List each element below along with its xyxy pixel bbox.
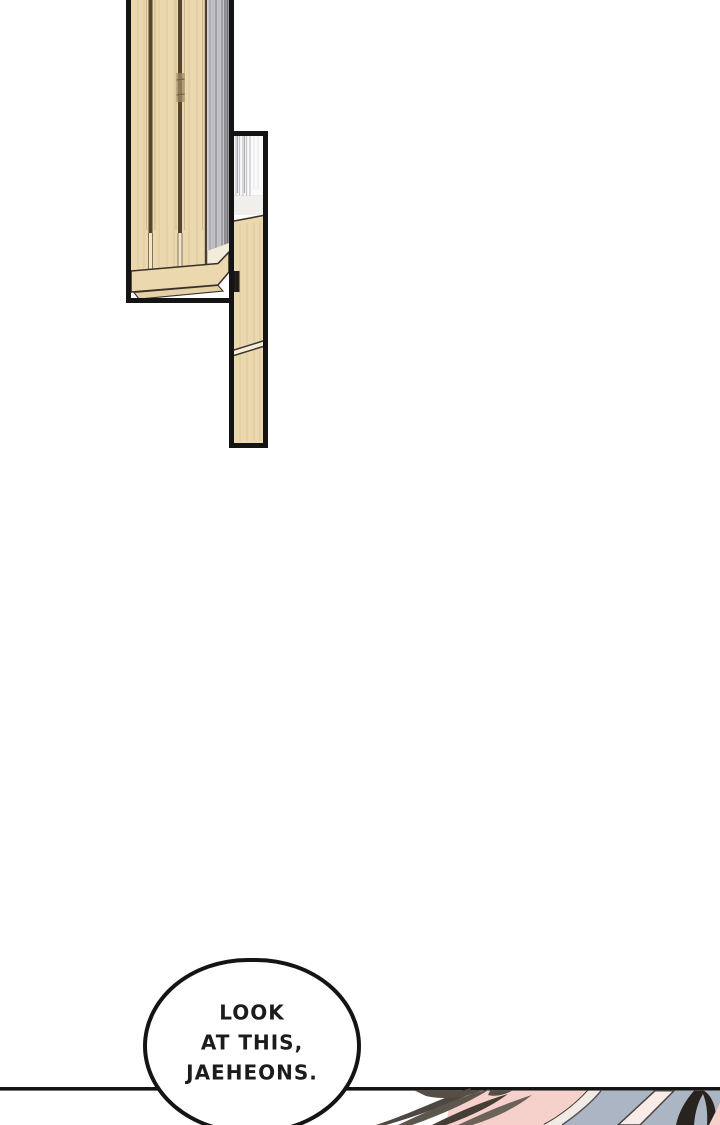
wood-slat bbox=[131, 0, 149, 272]
bottom-scene-artwork bbox=[0, 1085, 720, 1125]
sill-band bbox=[234, 196, 263, 215]
wood-slats bbox=[131, 0, 206, 272]
slat-gap bbox=[178, 0, 182, 233]
main-panel bbox=[126, 0, 234, 303]
character-head bbox=[376, 1088, 720, 1125]
beam-end-shadow bbox=[234, 271, 240, 292]
furniture-panels-artwork bbox=[0, 0, 720, 460]
inset-panel bbox=[229, 131, 268, 448]
wood-slat bbox=[182, 0, 205, 272]
shared-panel-border bbox=[229, 0, 234, 448]
comic-page: LOOK AT THIS, JAEHEONS. bbox=[0, 0, 720, 1125]
wood-joint bbox=[177, 73, 185, 102]
scene-divider-line bbox=[0, 1087, 720, 1091]
speech-bubble: LOOK AT THIS, JAEHEONS. bbox=[143, 958, 361, 1125]
bubble-line-1: LOOK bbox=[147, 997, 357, 1027]
bubble-line-2: AT THIS, bbox=[147, 1027, 357, 1057]
gray-curtain bbox=[208, 0, 229, 252]
glass-area bbox=[234, 136, 263, 215]
inset-wood bbox=[234, 216, 263, 444]
slat-gap bbox=[149, 0, 153, 233]
speech-bubble-text: LOOK AT THIS, JAEHEONS. bbox=[147, 997, 357, 1087]
bubble-line-3: JAEHEONS. bbox=[147, 1057, 357, 1087]
